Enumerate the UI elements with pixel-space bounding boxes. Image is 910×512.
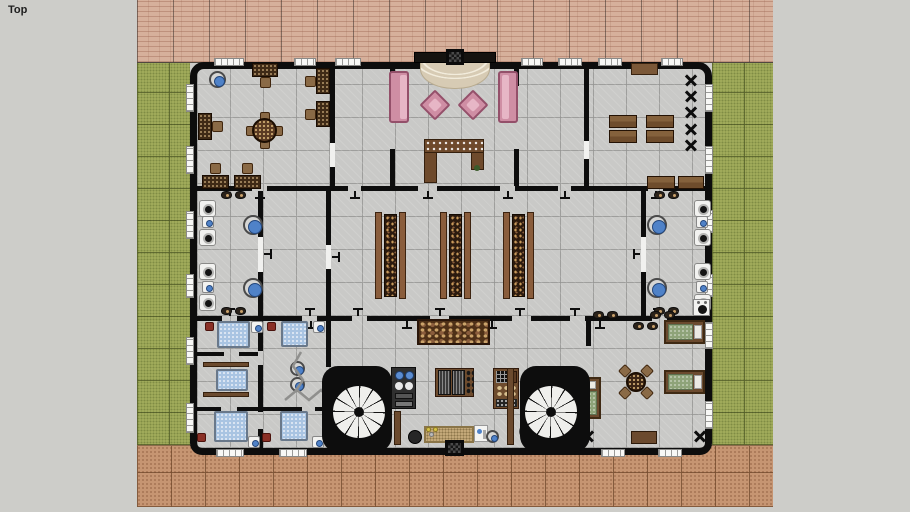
sink: [202, 281, 214, 293]
toilet-bowl: [698, 233, 709, 244]
wall: [330, 67, 335, 143]
wall: [326, 269, 331, 316]
chair-stack-marker: [684, 105, 698, 119]
fixture: [313, 321, 325, 333]
dish: [405, 382, 413, 390]
desk: [234, 163, 261, 189]
barrel-rack: [435, 368, 474, 397]
p: [423, 197, 433, 199]
wall: [197, 352, 224, 356]
rail: [399, 212, 406, 299]
plant: [474, 165, 480, 171]
window: [705, 146, 713, 174]
cushion: [502, 75, 509, 119]
p: [338, 252, 340, 262]
entrance-mat: [445, 440, 464, 456]
cushion: [668, 374, 693, 390]
p: [574, 309, 576, 316]
counter: [394, 411, 401, 445]
wash-basin: [243, 215, 263, 235]
p: [435, 308, 445, 310]
table: [647, 176, 675, 189]
desk: [305, 68, 330, 94]
window: [186, 84, 194, 112]
window: [601, 449, 625, 457]
table: [609, 130, 637, 143]
stair-hub: [546, 407, 556, 417]
p: [439, 309, 441, 316]
tap: [206, 220, 213, 227]
slipper: [593, 311, 604, 319]
meeting-table: [246, 112, 283, 149]
dot: [655, 314, 658, 317]
window: [294, 58, 316, 66]
window: [186, 337, 194, 365]
entrance-mat: [446, 49, 464, 65]
desk-top: [234, 175, 261, 189]
tap: [255, 325, 262, 332]
wall: [514, 149, 519, 186]
toilet: [694, 263, 711, 280]
chair: [260, 77, 271, 88]
slippers: [593, 311, 617, 319]
toilet-bowl: [203, 267, 214, 278]
chair-stack-marker: [684, 73, 698, 87]
sofa: [389, 71, 409, 123]
slipper: [647, 322, 658, 330]
tap: [700, 285, 707, 292]
sketchup-viewport[interactable]: Top: [0, 0, 910, 512]
slipper: [221, 307, 232, 315]
rail: [375, 212, 382, 299]
desk: [252, 63, 278, 88]
grass: [712, 63, 773, 445]
chair: [305, 109, 316, 120]
pillow: [694, 325, 702, 339]
door-swing-mark: [512, 307, 528, 325]
spiral-staircase: [520, 366, 590, 452]
window: [658, 449, 682, 457]
wash-basin: [243, 278, 263, 298]
p: [570, 308, 580, 310]
basin-bowl: [491, 435, 498, 442]
chair-stack-marker: [684, 89, 698, 103]
tap: [700, 220, 707, 227]
lounger: [664, 370, 705, 394]
toilet: [199, 294, 216, 311]
rail: [440, 212, 447, 299]
tap: [316, 440, 323, 447]
cushion: [400, 75, 407, 119]
wash-basin: [647, 278, 667, 298]
dot: [226, 310, 229, 313]
chair-stack-marker: [684, 122, 698, 136]
buffet-table: [417, 319, 490, 345]
chair: [212, 121, 223, 132]
stair-hub: [354, 407, 364, 417]
toilet: [694, 229, 711, 246]
p: [519, 309, 521, 316]
toilet-bowl: [203, 204, 214, 215]
window: [705, 84, 713, 112]
p: [560, 197, 570, 199]
basin-bowl: [652, 220, 666, 234]
dot: [669, 314, 672, 317]
knob: [704, 301, 707, 304]
door-swing-mark: [347, 182, 363, 200]
wall: [531, 316, 570, 321]
dot: [598, 314, 601, 317]
door-swing-mark: [500, 182, 516, 200]
window: [705, 322, 713, 349]
p: [503, 197, 513, 199]
table-set: [620, 366, 652, 398]
dish: [395, 382, 403, 390]
bottle-rack: [466, 370, 474, 395]
bottle: [429, 432, 434, 437]
slippers: [633, 322, 657, 330]
wall: [641, 272, 646, 316]
p: [633, 249, 635, 259]
window: [186, 274, 194, 298]
bowl: [486, 430, 499, 443]
window: [705, 401, 713, 429]
barrel: [438, 370, 451, 395]
drawer: [395, 393, 413, 399]
burner: [405, 371, 414, 380]
sink: [696, 281, 708, 293]
chair: [242, 163, 253, 174]
sink: [696, 216, 708, 228]
basin-bowl: [652, 283, 666, 297]
slippers: [221, 191, 247, 199]
desk: [305, 101, 330, 127]
burner: [395, 371, 404, 380]
side-table: [631, 63, 658, 75]
cushion: [466, 98, 480, 112]
wall: [361, 186, 418, 191]
window: [186, 146, 194, 174]
window: [216, 449, 244, 457]
drawer: [395, 401, 413, 407]
sink: [202, 216, 214, 228]
dot: [240, 194, 243, 197]
bench: [203, 392, 249, 397]
bench: [203, 362, 249, 367]
slipper: [235, 307, 246, 315]
stove: [693, 299, 710, 316]
rail: [527, 212, 534, 299]
door-swing-mark: [633, 245, 649, 263]
wall: [258, 365, 263, 412]
dot: [659, 194, 662, 197]
door-swing-mark: [567, 307, 583, 325]
slipper: [654, 191, 665, 199]
p: [515, 308, 525, 310]
door-swing-mark: [323, 248, 339, 266]
slipper: [221, 191, 232, 199]
p: [270, 249, 272, 259]
barrel: [452, 370, 465, 395]
dot: [673, 194, 676, 197]
fixture: [248, 436, 260, 448]
dot: [612, 314, 615, 317]
cooktop-unit: [391, 367, 416, 409]
wall: [390, 149, 395, 186]
toilet-bowl: [698, 267, 709, 278]
desk: [202, 163, 229, 189]
buffet-shelf: [440, 212, 471, 299]
toilet-bowl: [203, 298, 214, 309]
door-swing-mark: [350, 307, 366, 325]
slipper: [664, 311, 675, 319]
tap: [252, 440, 259, 447]
wall: [267, 186, 348, 191]
wall: [586, 321, 591, 346]
display: [512, 214, 525, 297]
fixture: [251, 321, 263, 333]
wall: [584, 67, 589, 141]
stool: [267, 322, 276, 331]
rail: [503, 212, 510, 299]
slipper: [235, 191, 246, 199]
wash-basin: [647, 215, 667, 235]
desk-top: [202, 175, 229, 189]
slipper: [650, 311, 661, 319]
counter-arm: [424, 152, 437, 183]
toilet: [199, 263, 216, 280]
desk-top: [316, 68, 330, 94]
p: [357, 309, 359, 316]
table: [646, 130, 674, 143]
toilet-bowl: [698, 204, 709, 215]
burner: [698, 305, 707, 314]
window: [186, 211, 194, 239]
buffet-shelf: [375, 212, 406, 299]
door-swing-mark: [557, 182, 573, 200]
table-top: [626, 372, 646, 392]
basin-bowl: [248, 283, 262, 297]
wall: [584, 159, 589, 186]
chair-stack-marker: [684, 138, 698, 152]
knob: [697, 301, 700, 304]
wash-basin: [209, 71, 226, 88]
dot: [226, 194, 229, 197]
cushion: [668, 324, 693, 340]
window: [661, 58, 683, 66]
stool: [262, 433, 271, 442]
slipper: [668, 191, 679, 199]
dot: [652, 325, 655, 328]
basin-bowl: [248, 220, 262, 234]
side-table: [631, 431, 657, 444]
wall: [571, 186, 648, 191]
basin-bowl: [214, 76, 225, 87]
slippers: [654, 191, 680, 199]
bottle: [433, 427, 438, 432]
stool: [197, 433, 206, 442]
sofa: [498, 71, 518, 123]
stool: [205, 322, 214, 331]
floor-marker: [693, 429, 707, 443]
wall: [437, 186, 500, 191]
p: [402, 327, 412, 329]
cushion: [428, 98, 442, 112]
wall: [515, 186, 558, 191]
spa-bed: [214, 411, 248, 442]
wall: [326, 191, 331, 245]
buffet-shelf: [503, 212, 534, 299]
slipper: [633, 322, 644, 330]
display: [384, 214, 397, 297]
pot: [408, 430, 422, 444]
p: [595, 327, 605, 329]
chair: [305, 76, 316, 87]
table: [609, 115, 637, 128]
door-swing-mark: [399, 312, 415, 330]
display: [449, 214, 462, 297]
wall: [330, 167, 335, 186]
spa-bed: [281, 321, 308, 347]
dot: [477, 429, 482, 434]
grass: [137, 63, 190, 445]
wall: [641, 191, 646, 237]
window: [186, 403, 194, 433]
massage-bed: [216, 369, 248, 391]
desk-top: [252, 63, 278, 77]
door-swing-mark: [420, 182, 436, 200]
toilet: [199, 229, 216, 246]
window: [279, 449, 307, 457]
tap: [317, 325, 324, 332]
slippers: [650, 311, 676, 319]
table-top: [252, 118, 277, 143]
toilet: [694, 200, 711, 217]
bottles: [426, 427, 438, 437]
p: [350, 197, 360, 199]
p: [353, 308, 363, 310]
table: [646, 115, 674, 128]
chair: [210, 163, 221, 174]
desk-top: [198, 113, 212, 140]
wall: [239, 352, 258, 356]
dot: [638, 325, 641, 328]
pantry-unit: [493, 368, 519, 409]
window: [521, 58, 543, 66]
toilet-bowl: [203, 233, 214, 244]
pillow: [694, 375, 702, 389]
window: [214, 58, 244, 66]
door-opening: [584, 141, 589, 159]
rail: [464, 212, 471, 299]
dot: [240, 310, 243, 313]
view-label: Top: [8, 4, 27, 16]
table: [678, 176, 704, 189]
door-swing-mark: [255, 245, 271, 263]
toilet: [199, 200, 216, 217]
spa-bed: [217, 321, 250, 348]
door-opening: [330, 143, 335, 167]
lounger: [664, 320, 705, 344]
p: [255, 197, 265, 199]
slippers: [221, 307, 247, 315]
window: [558, 58, 582, 66]
reception-desk: [424, 139, 484, 184]
window: [598, 58, 622, 66]
spiral-staircase: [322, 366, 392, 452]
window: [335, 58, 361, 66]
counter-top: [424, 139, 484, 153]
p: [305, 308, 315, 310]
counter: [507, 368, 514, 445]
desk-top: [316, 101, 330, 127]
desk: [198, 113, 223, 140]
tap: [206, 285, 213, 292]
slipper: [607, 311, 618, 319]
spa-bed: [280, 411, 308, 441]
